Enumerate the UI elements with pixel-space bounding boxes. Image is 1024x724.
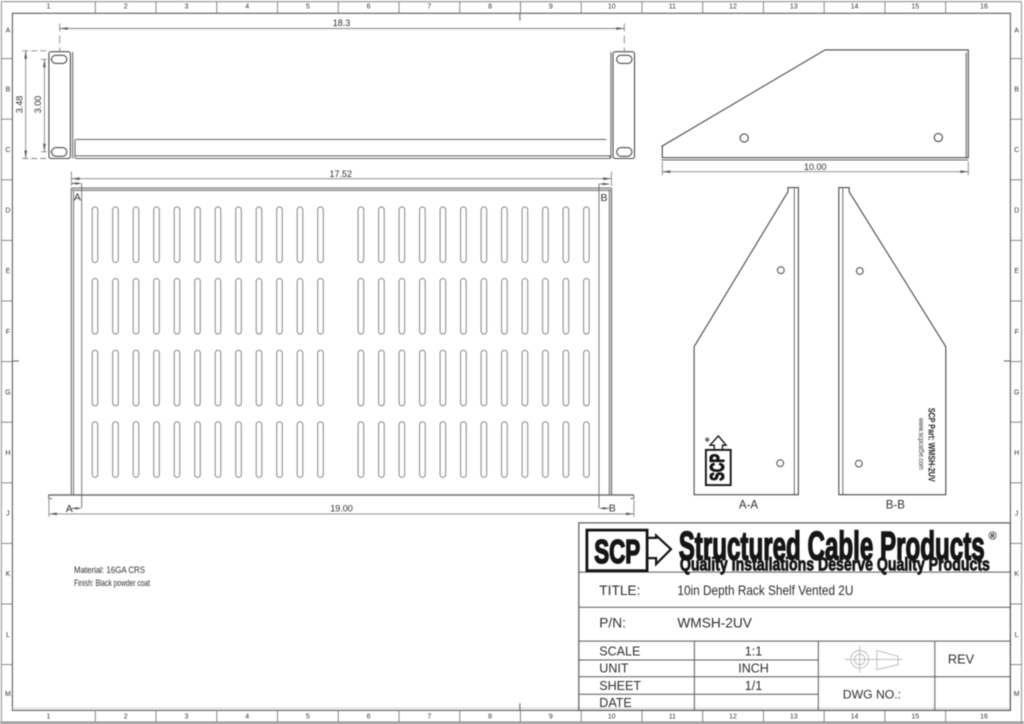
svg-text:D: D [5, 208, 10, 215]
svg-text:A: A [6, 28, 11, 35]
svg-text:K: K [1014, 571, 1019, 578]
svg-text:B: B [600, 192, 607, 204]
svg-text:TITLE:: TITLE: [599, 583, 640, 598]
svg-text:J: J [6, 511, 10, 518]
svg-text:www.scpcat5e.com: www.scpcat5e.com [917, 417, 924, 470]
svg-text:SHEET: SHEET [599, 679, 641, 693]
svg-text:DATE: DATE [599, 696, 631, 710]
svg-text:M: M [1014, 691, 1020, 698]
svg-text:14: 14 [851, 713, 859, 720]
svg-text:1:1: 1:1 [745, 644, 762, 658]
svg-text:10: 10 [608, 3, 616, 10]
svg-text:C: C [1014, 147, 1019, 154]
svg-text:D: D [1014, 208, 1019, 215]
svg-text:5: 5 [306, 3, 310, 10]
svg-text:E: E [6, 268, 11, 275]
svg-text:INCH: INCH [738, 661, 769, 675]
svg-text:7: 7 [427, 3, 431, 10]
svg-text:1/1: 1/1 [745, 679, 762, 693]
svg-text:11: 11 [669, 3, 676, 10]
svg-text:B: B [1014, 86, 1019, 93]
svg-text:15: 15 [911, 713, 919, 720]
svg-text:3.48: 3.48 [14, 96, 24, 114]
svg-text:7: 7 [427, 713, 431, 720]
svg-text:G: G [5, 389, 10, 396]
svg-text:18.3: 18.3 [333, 18, 351, 28]
svg-text:A: A [74, 192, 81, 204]
svg-text:2: 2 [124, 713, 128, 720]
svg-text:6: 6 [367, 713, 371, 720]
svg-text:3.00: 3.00 [33, 96, 43, 114]
svg-text:Material: 16GA CRS: Material: 16GA CRS [74, 565, 145, 575]
svg-text:H: H [5, 450, 10, 457]
svg-text:12: 12 [729, 713, 737, 720]
svg-text:8: 8 [488, 3, 492, 10]
svg-text:J: J [1015, 511, 1019, 518]
svg-text:14: 14 [851, 3, 859, 10]
svg-text:3: 3 [184, 3, 188, 10]
svg-text:3: 3 [184, 713, 188, 720]
svg-text:DWG NO.:: DWG NO.: [843, 688, 901, 702]
svg-text:Quality Installations Deserve: Quality Installations Deserve Quality Pr… [680, 554, 990, 574]
svg-text:L: L [1015, 632, 1019, 639]
svg-text:19.00: 19.00 [330, 504, 353, 514]
svg-text:REV: REV [948, 651, 975, 666]
svg-text:UNIT: UNIT [599, 661, 629, 675]
svg-text:F: F [6, 329, 10, 336]
svg-text:2: 2 [124, 3, 128, 10]
svg-text:SCALE: SCALE [599, 644, 640, 658]
svg-text:1: 1 [46, 713, 50, 720]
svg-text:L: L [6, 632, 10, 639]
svg-text:M: M [5, 691, 11, 698]
svg-text:1: 1 [46, 3, 50, 10]
svg-text:C: C [5, 147, 10, 154]
svg-text:10.00: 10.00 [804, 162, 827, 172]
svg-text:B: B [6, 86, 11, 93]
svg-text:K: K [6, 571, 11, 578]
svg-text:SCP: SCP [594, 533, 640, 570]
svg-text:13: 13 [790, 713, 798, 720]
svg-text:10: 10 [608, 713, 616, 720]
svg-text:Finish: Black powder coat: Finish: Black powder coat [74, 578, 150, 588]
svg-text:A-A: A-A [739, 500, 759, 512]
svg-text:9: 9 [549, 3, 553, 10]
svg-text:SCP Part: WMSH-2UV: SCP Part: WMSH-2UV [926, 408, 936, 482]
svg-text:11: 11 [669, 713, 676, 720]
svg-text:P/N:: P/N: [599, 615, 626, 630]
svg-text:15: 15 [911, 3, 919, 10]
svg-text:B: B [609, 502, 616, 514]
svg-text:4: 4 [245, 3, 249, 10]
svg-text:9: 9 [549, 713, 553, 720]
svg-text:E: E [1014, 268, 1019, 275]
svg-text:G: G [1014, 389, 1019, 396]
svg-text:4: 4 [245, 713, 249, 720]
svg-text:WMSH-2UV: WMSH-2UV [677, 615, 752, 630]
svg-text:17.52: 17.52 [330, 169, 353, 179]
svg-text:A: A [66, 503, 73, 515]
svg-text:10in Depth Rack Shelf Vented 2: 10in Depth Rack Shelf Vented 2U [677, 583, 853, 598]
svg-text:F: F [1014, 329, 1018, 336]
svg-text:A: A [1014, 28, 1019, 35]
svg-text:13: 13 [790, 3, 798, 10]
svg-text:SCP: SCP [707, 454, 729, 481]
svg-text:B-B: B-B [886, 500, 906, 512]
svg-text:5: 5 [306, 713, 310, 720]
svg-text:®: ® [989, 531, 997, 543]
svg-text:6: 6 [367, 3, 371, 10]
svg-text:16: 16 [980, 3, 988, 10]
svg-text:8: 8 [488, 713, 492, 720]
svg-text:12: 12 [729, 3, 737, 10]
svg-text:16: 16 [980, 713, 988, 720]
svg-text:H: H [1014, 450, 1019, 457]
